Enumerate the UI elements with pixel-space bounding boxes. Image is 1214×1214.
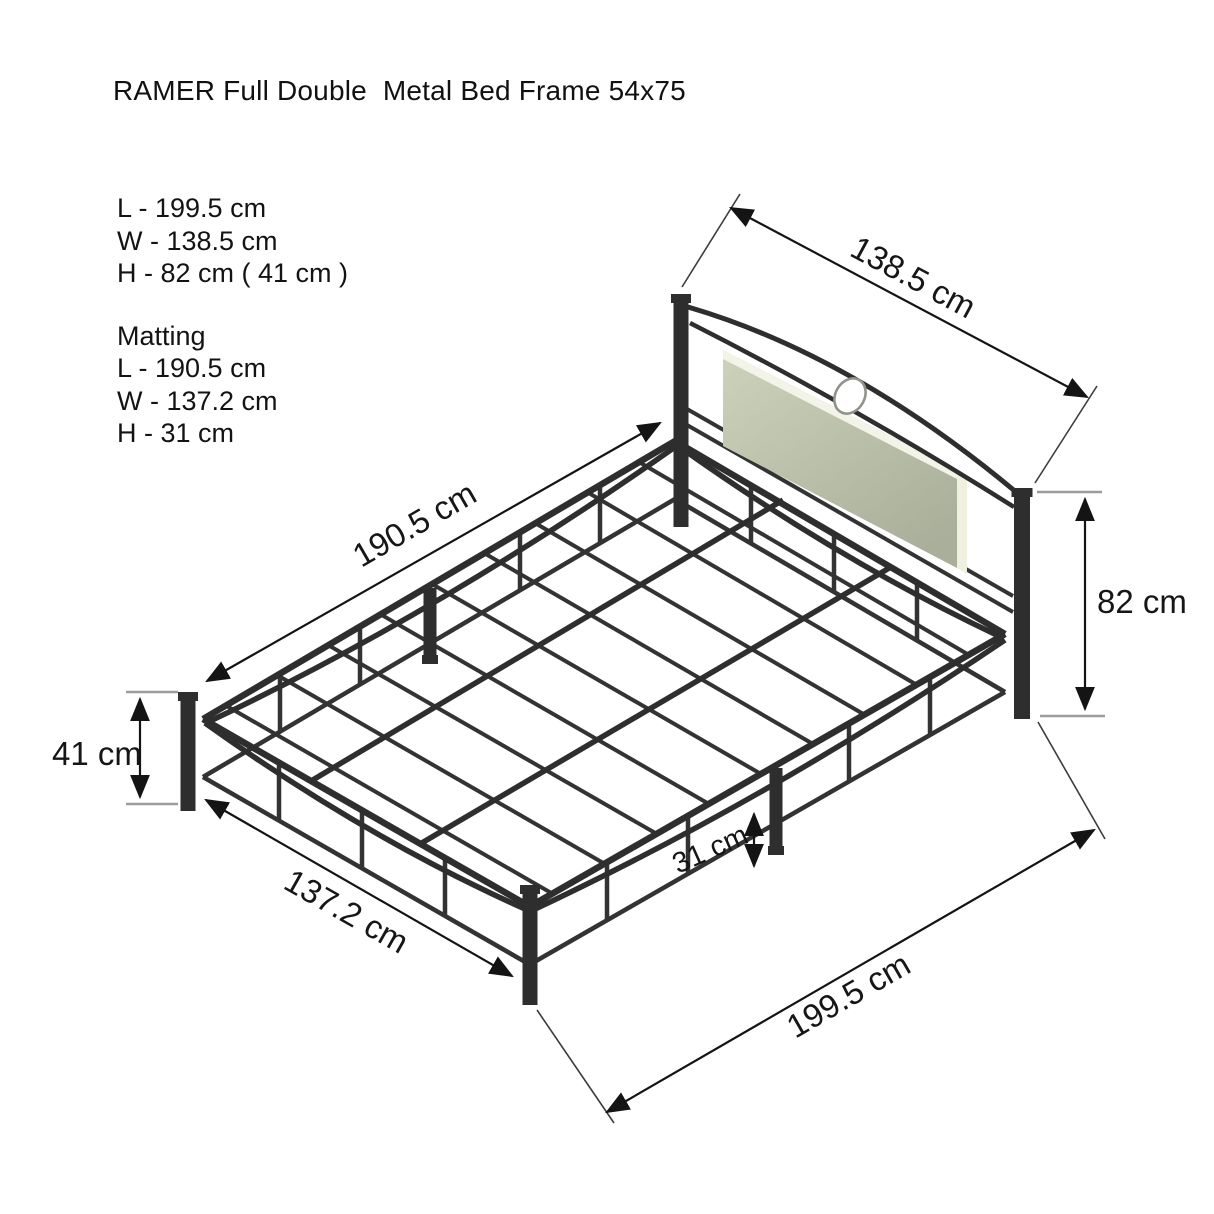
dim-label-matting-width: 137.2 cm (278, 861, 414, 960)
bed-frame-diagram: 138.5 cm 190.5 cm 82 cm 41 cm 137.2 cm 3… (0, 0, 1214, 1214)
dim-arrow-headboard-width (731, 208, 1087, 397)
dim-label-overall-length: 199.5 cm (780, 945, 916, 1045)
dim-label-base-height: 41 cm (52, 735, 142, 772)
dim-label-matting-length: 190.5 cm (346, 474, 482, 574)
extension-line (1038, 722, 1105, 839)
headboard (687, 307, 1016, 612)
left-side-rail (203, 441, 675, 719)
product-dimension-sheet: RAMER Full Double Metal Bed Frame 54x75 … (0, 0, 1214, 1214)
dim-label-overall-height: 82 cm (1097, 583, 1187, 620)
headboard-panel-side-edge (957, 470, 967, 574)
extension-line (1035, 386, 1097, 483)
platform-slats (225, 462, 969, 894)
dim-label-clearance-height: 31 cm (668, 819, 753, 880)
right-side-rail (529, 634, 1005, 907)
dim-arrow-matting-width (206, 800, 512, 976)
extension-line (537, 1010, 614, 1123)
dim-label-headboard-width: 138.5 cm (845, 228, 982, 325)
